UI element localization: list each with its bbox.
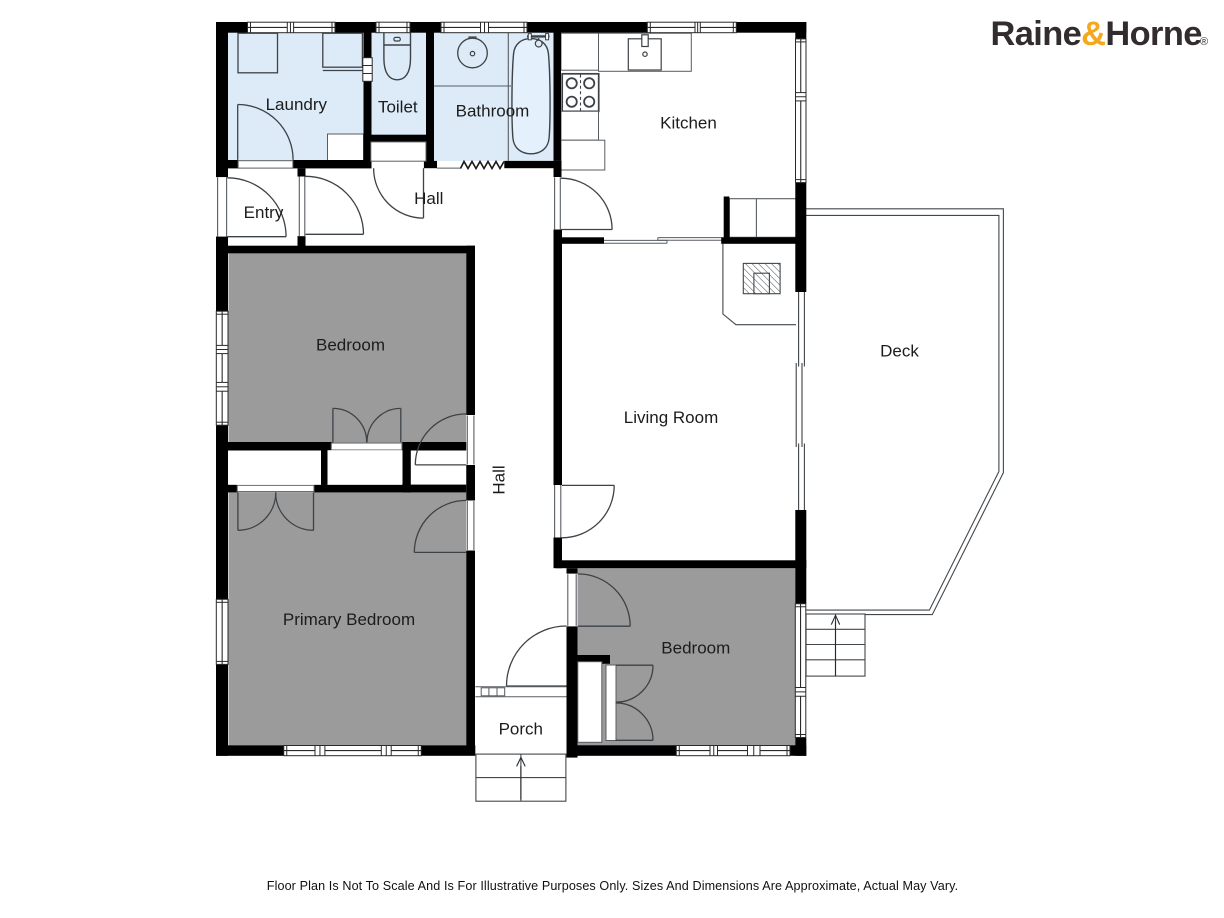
svg-text:Raine&Horne: Raine&Horne	[991, 15, 1202, 53]
svg-text:Bathroom: Bathroom	[456, 101, 530, 120]
svg-text:Bedroom: Bedroom	[316, 335, 385, 354]
svg-text:Laundry: Laundry	[266, 95, 328, 114]
svg-text:Toilet: Toilet	[378, 97, 418, 116]
svg-text:Hall: Hall	[490, 465, 509, 494]
svg-text:Entry: Entry	[244, 203, 284, 222]
svg-text:Porch: Porch	[499, 719, 543, 738]
svg-text:Hall: Hall	[414, 189, 443, 208]
svg-text:®: ®	[1200, 36, 1208, 48]
svg-text:Primary Bedroom: Primary Bedroom	[283, 610, 415, 629]
svg-text:Deck: Deck	[880, 342, 919, 361]
svg-text:Bedroom: Bedroom	[661, 638, 730, 657]
svg-text:Living Room: Living Room	[624, 408, 719, 427]
svg-text:Kitchen: Kitchen	[660, 114, 717, 133]
svg-text:Floor Plan Is Not To Scale And: Floor Plan Is Not To Scale And Is For Il…	[267, 879, 958, 893]
